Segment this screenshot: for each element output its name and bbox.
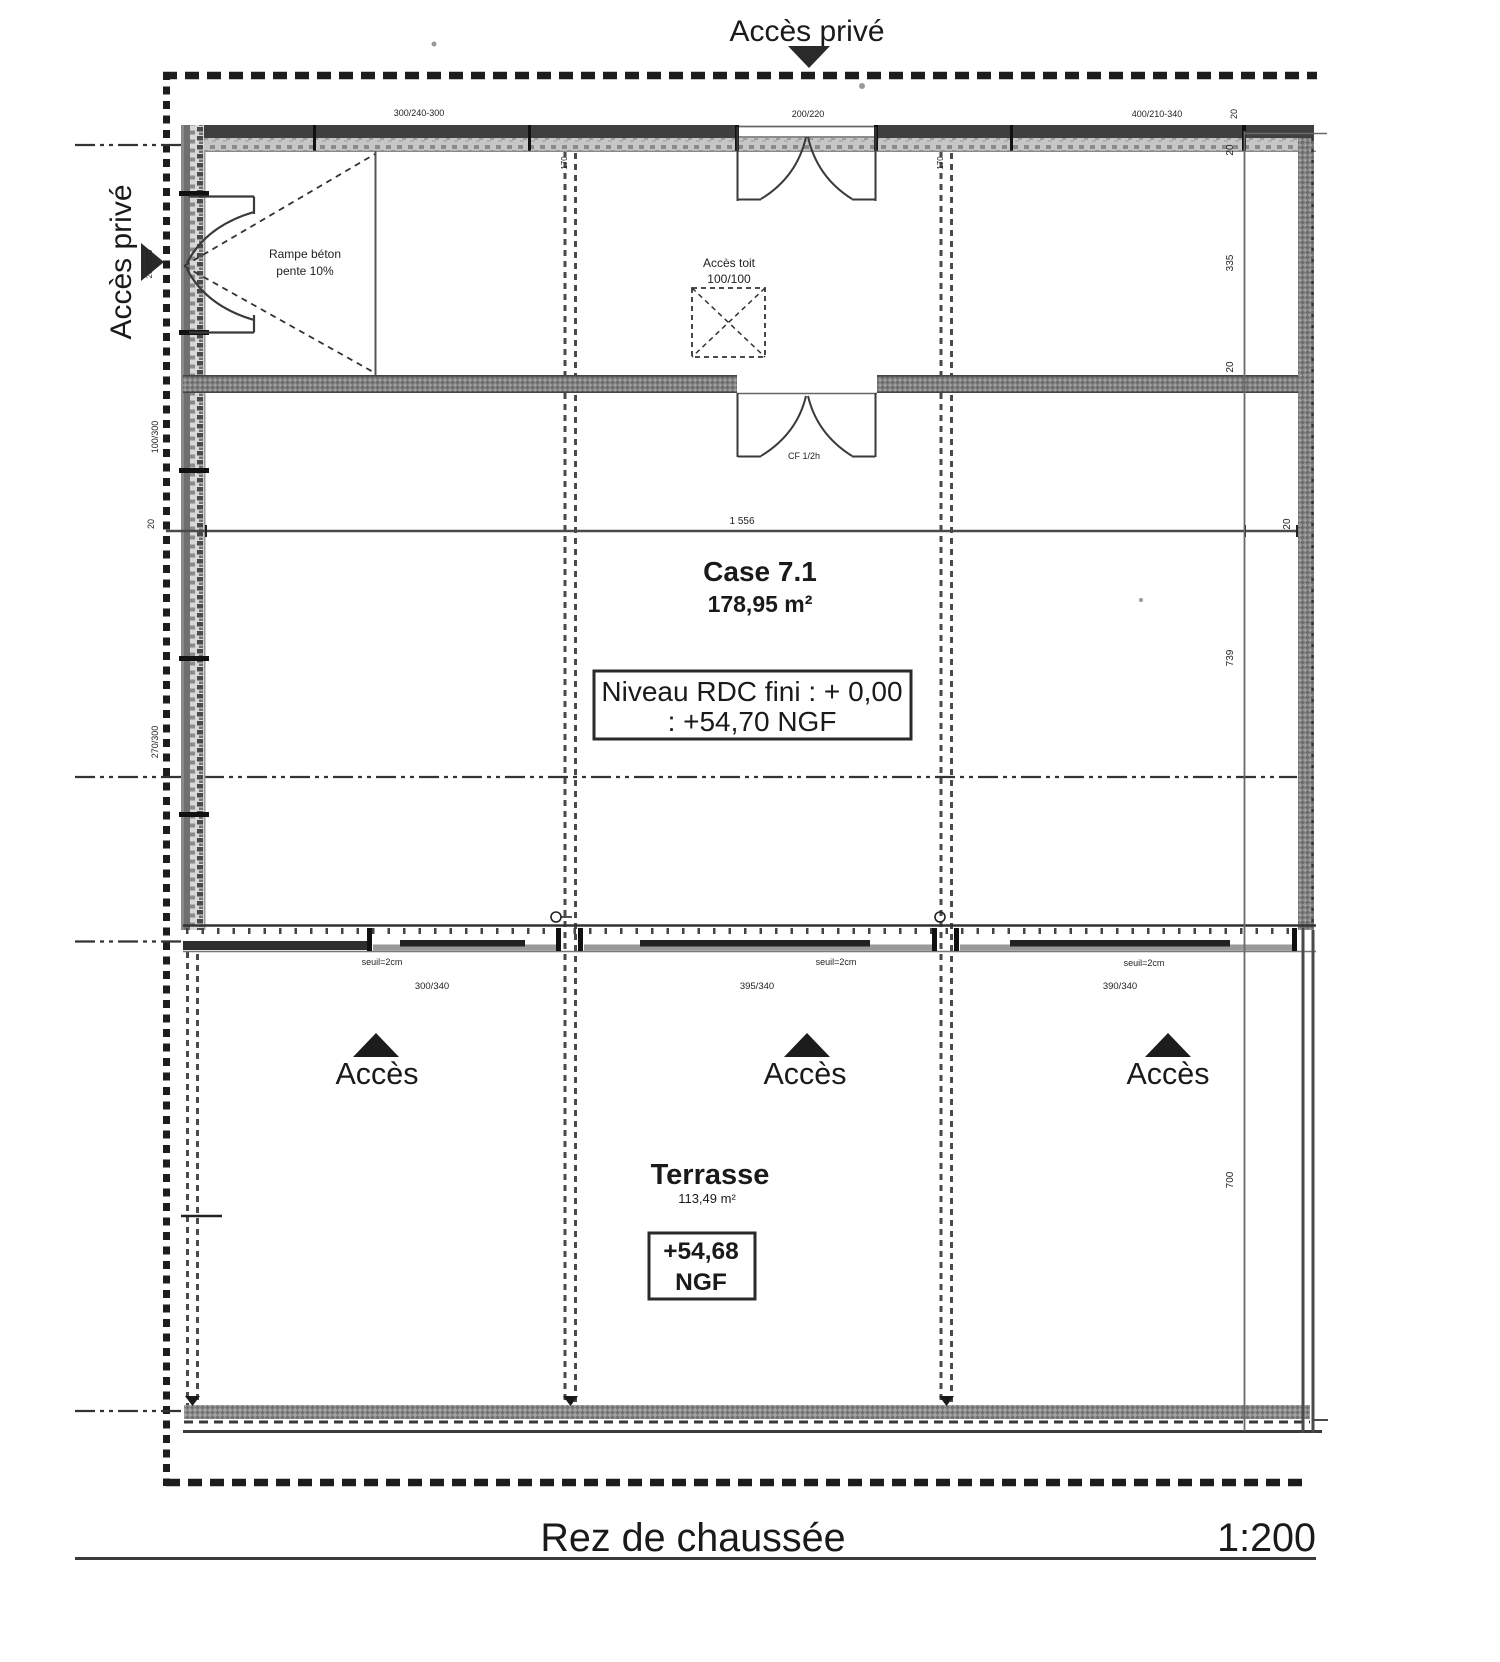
svg-text:170: 170 — [936, 156, 945, 170]
svg-text:100/100: 100/100 — [707, 272, 751, 286]
svg-text:Accès privé: Accès privé — [729, 15, 884, 48]
svg-text:300/240-300: 300/240-300 — [394, 108, 445, 118]
svg-text:170: 170 — [560, 156, 569, 170]
svg-text:Accès: Accès — [1126, 1057, 1209, 1091]
svg-text:113,49 m²: 113,49 m² — [678, 1191, 736, 1206]
svg-text:Accès: Accès — [335, 1057, 418, 1091]
svg-text:Accès privé: Accès privé — [105, 184, 138, 339]
svg-text:Case 7.1: Case 7.1 — [703, 556, 817, 587]
svg-text:Rez de chaussée: Rez de chaussée — [540, 1516, 845, 1560]
svg-text:400/210-340: 400/210-340 — [1132, 109, 1183, 119]
svg-text:seuil=2cm: seuil=2cm — [362, 957, 403, 967]
svg-text:20: 20 — [1229, 109, 1239, 119]
svg-text:390/340: 390/340 — [1103, 981, 1137, 992]
svg-text:: +54,70 NGF: : +54,70 NGF — [668, 706, 837, 737]
svg-text:100/300: 100/300 — [150, 421, 160, 454]
svg-text:700: 700 — [1225, 1171, 1236, 1188]
svg-text:CF 1/2h: CF 1/2h — [788, 451, 820, 461]
svg-text:300/340: 300/340 — [415, 981, 449, 992]
svg-text:+54,68: +54,68 — [663, 1238, 739, 1265]
svg-text:395/340: 395/340 — [740, 981, 774, 992]
svg-text:270/300: 270/300 — [150, 726, 160, 759]
svg-text:20: 20 — [1225, 144, 1236, 156]
svg-text:Accès toit: Accès toit — [703, 256, 756, 270]
svg-text:1 556: 1 556 — [729, 516, 754, 527]
svg-text:Niveau RDC fini : + 0,00: Niveau RDC fini : + 0,00 — [601, 676, 902, 707]
svg-text:178,95 m²: 178,95 m² — [708, 591, 813, 617]
svg-text:335: 335 — [1225, 254, 1236, 271]
svg-text:20: 20 — [1282, 518, 1293, 530]
svg-text:20: 20 — [1225, 361, 1236, 373]
svg-text:200/220: 200/220 — [792, 109, 825, 119]
svg-text:Terrasse: Terrasse — [651, 1159, 770, 1191]
svg-text:NGF: NGF — [675, 1269, 727, 1296]
svg-text:20: 20 — [146, 519, 156, 529]
svg-text:Rampe béton: Rampe béton — [269, 247, 341, 261]
svg-text:seuil=2cm: seuil=2cm — [816, 957, 857, 967]
svg-text:200/300: 200/300 — [145, 249, 154, 278]
svg-text:seuil=2cm: seuil=2cm — [1124, 958, 1165, 968]
svg-text:pente 10%: pente 10% — [276, 264, 334, 278]
svg-text:Accès: Accès — [763, 1057, 846, 1091]
svg-text:739: 739 — [1225, 649, 1236, 666]
svg-text:1:200: 1:200 — [1217, 1516, 1316, 1560]
